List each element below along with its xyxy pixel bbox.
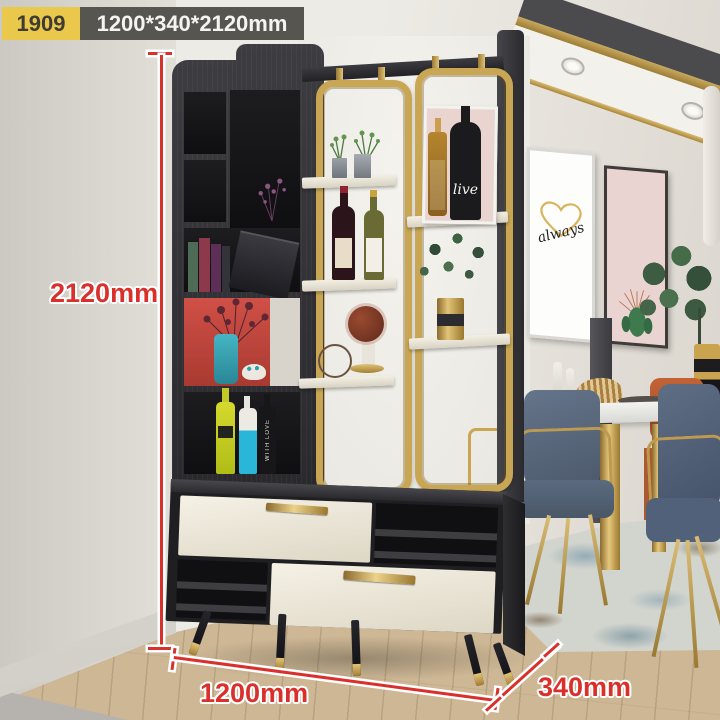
decor-bowl: [242, 364, 266, 380]
left-wall: [0, 0, 176, 706]
amber-bottle: [428, 132, 447, 216]
wine-label: [335, 238, 352, 268]
shelf-compartment: [184, 160, 226, 222]
drawer-upper: [178, 495, 372, 562]
black-bottle: WITH LOVE: [259, 406, 276, 474]
wall-pillar: [703, 86, 720, 246]
product-photo-room-divider: always: [0, 0, 720, 720]
model-number-badge: 1909: [2, 7, 80, 40]
metal-pot: [332, 158, 347, 178]
red-wine-bottle: [332, 206, 355, 280]
dim-cap-bottom: [148, 647, 172, 650]
gold-vase: [437, 298, 464, 340]
size-badge: 1200*340*2120mm: [80, 7, 304, 40]
poster-word: live: [450, 182, 481, 198]
dim-label-width: 1200mm: [200, 678, 308, 709]
wire-ring-decor: [318, 344, 352, 378]
base-cabinet: [166, 479, 507, 634]
plant-foliage: [632, 238, 720, 350]
leaning-book: [229, 230, 300, 299]
books-compartment: [184, 228, 300, 292]
downlight-icon: [559, 54, 587, 78]
potted-plant: [632, 238, 720, 400]
book-spine: [211, 244, 221, 292]
eucalyptus-foliage: [408, 226, 498, 304]
shelf-slat: [375, 529, 497, 541]
dried-flowers-icon: [246, 150, 298, 226]
metal-pot: [354, 154, 371, 178]
cabinet-side-panel: [503, 494, 525, 658]
vase-band: [437, 314, 464, 326]
shelf-slat: [374, 551, 496, 563]
yellow-bottle: [216, 402, 235, 474]
herb-pots: [326, 128, 390, 178]
wine-bottle-cap: [370, 190, 377, 197]
dark-live-bottle: live: [450, 122, 481, 220]
drawer-handle: [343, 570, 415, 584]
drawer-handle: [266, 503, 328, 516]
shelf-slat: [177, 581, 267, 591]
wine-label: [366, 238, 382, 272]
bottles-compartment: WITH LOVE: [184, 392, 300, 474]
shelf-compartment: [230, 90, 300, 228]
book-spine: [188, 242, 198, 292]
dim-line-height: [160, 55, 163, 647]
spiky-ball-decor: [348, 306, 384, 342]
open-shelf-cell: [374, 503, 498, 568]
bottle-label: [218, 426, 233, 438]
shelf-slat: [176, 603, 266, 613]
wine-bottle-cap: [340, 186, 348, 193]
bottle-pattern: [430, 160, 445, 210]
open-shelf-cell: [176, 559, 268, 620]
shelf-compartment: [184, 92, 226, 154]
plant-stem: [698, 308, 701, 348]
wall-art-heart: always: [527, 147, 595, 343]
white-wine-bottle: [364, 210, 384, 280]
blue-chair-seat: [518, 480, 614, 518]
bottle-text: WITH LOVE: [265, 419, 271, 461]
dim-label-depth: 340mm: [538, 672, 631, 703]
dim-label-height: 2120mm: [50, 278, 158, 309]
cyan-bottle: [239, 408, 257, 474]
blue-chair-seat: [646, 498, 720, 542]
red-compartment: [184, 298, 300, 386]
book-spine: [199, 238, 210, 292]
teal-vase: [214, 334, 238, 384]
drawer-lower: [269, 563, 495, 634]
gold-dish: [350, 364, 384, 373]
